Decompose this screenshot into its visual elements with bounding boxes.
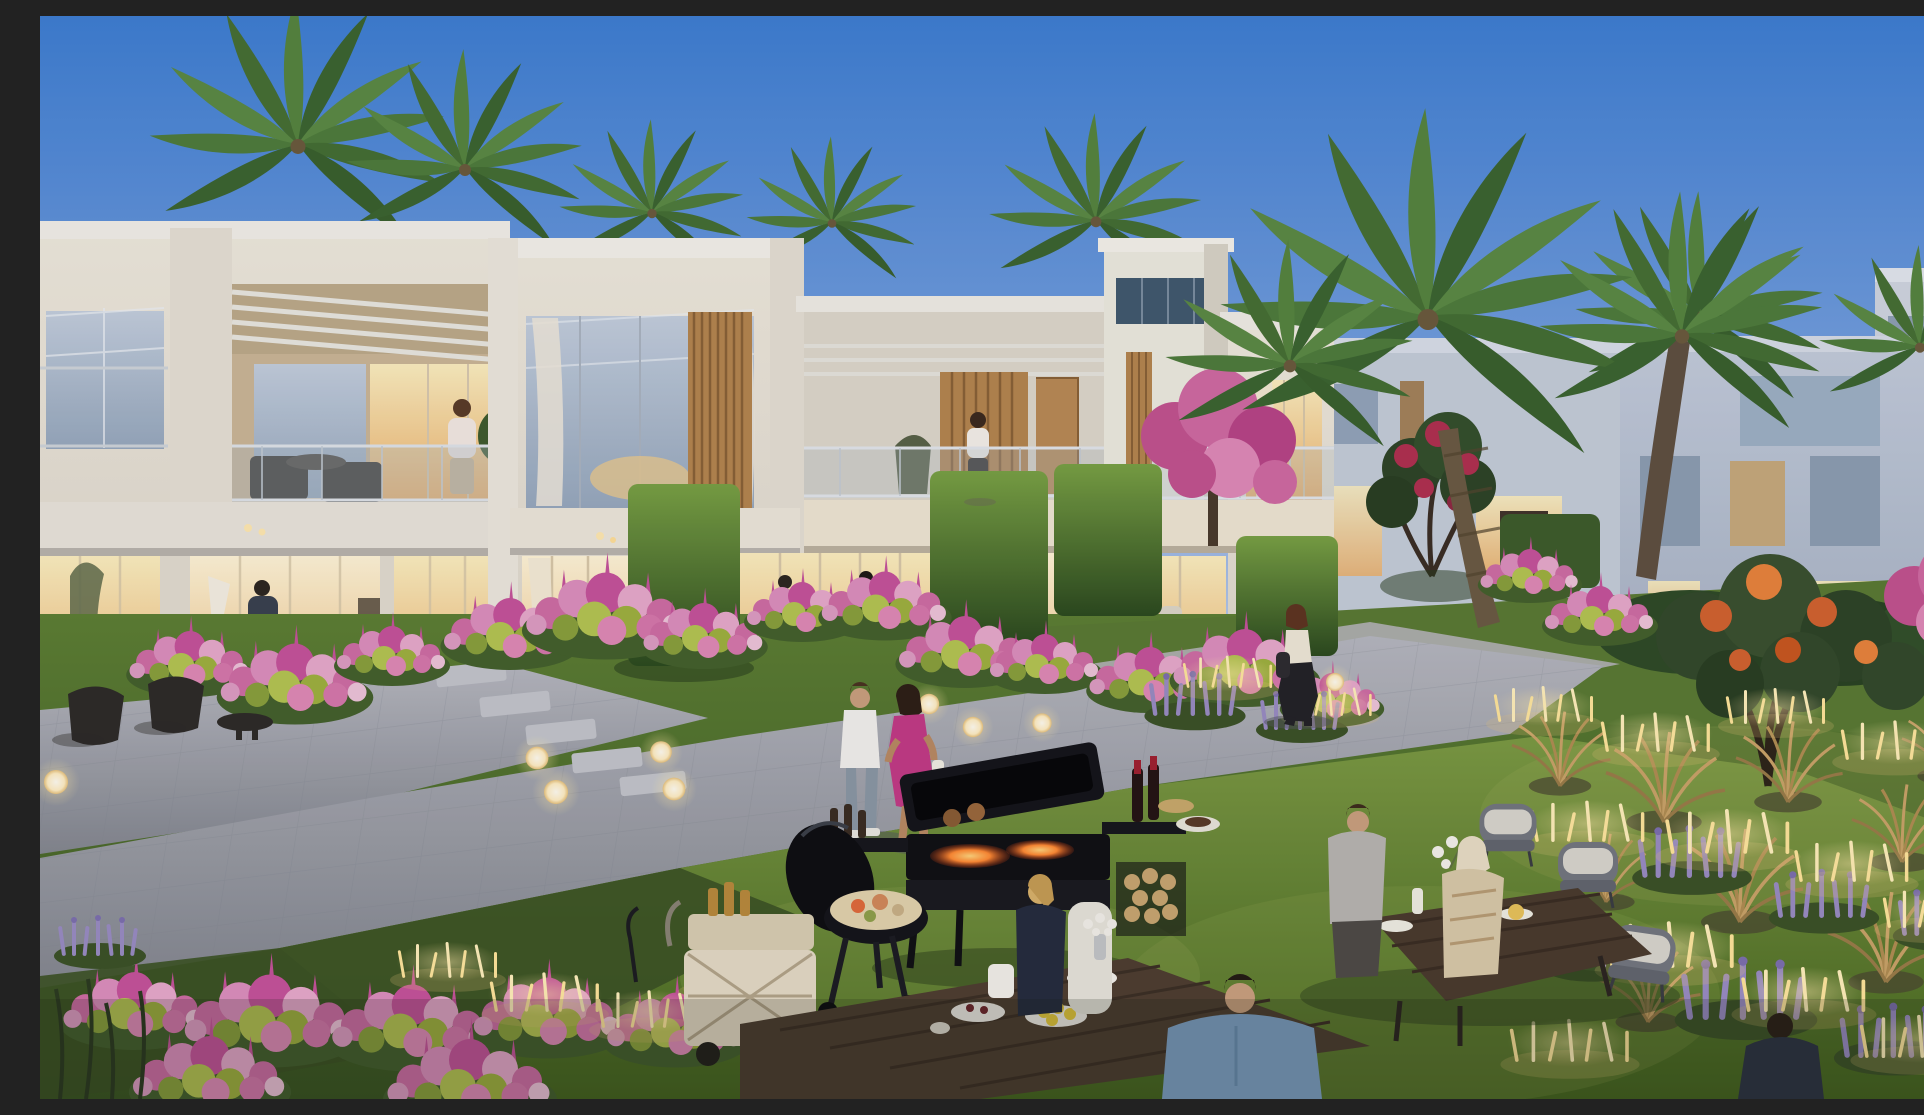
scene-canvas: Twilight courtyard rendering of a modern… xyxy=(40,16,1924,1099)
vignette xyxy=(40,16,1924,1099)
render-image: Twilight courtyard rendering of a modern… xyxy=(40,16,1924,1099)
